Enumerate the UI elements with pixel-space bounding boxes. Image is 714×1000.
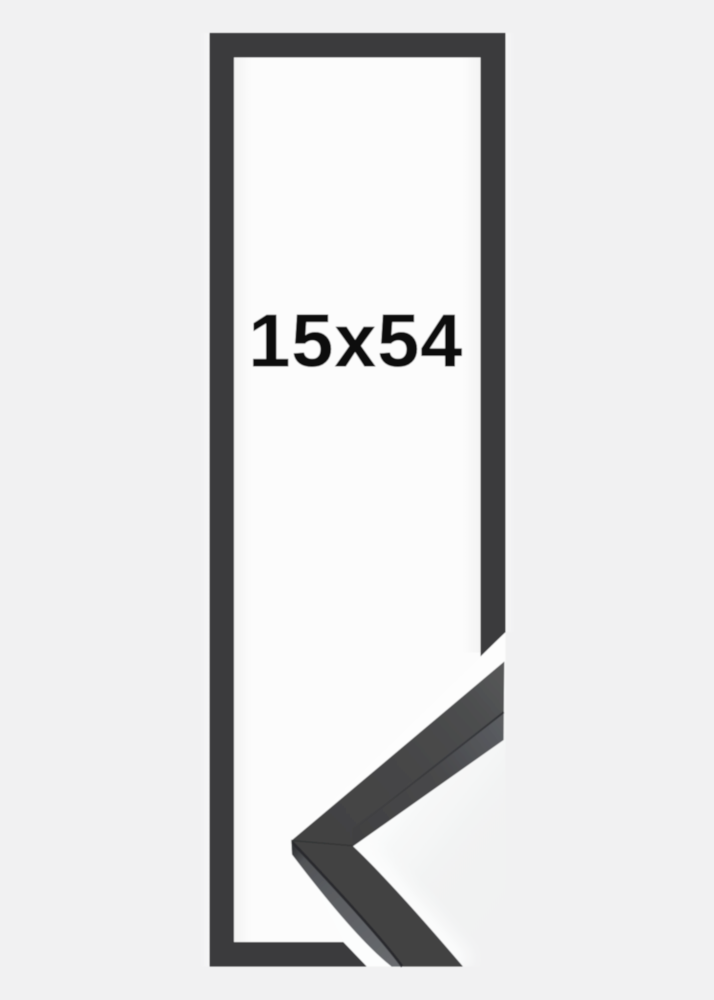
svg-text:15x54: 15x54 bbox=[248, 298, 463, 382]
